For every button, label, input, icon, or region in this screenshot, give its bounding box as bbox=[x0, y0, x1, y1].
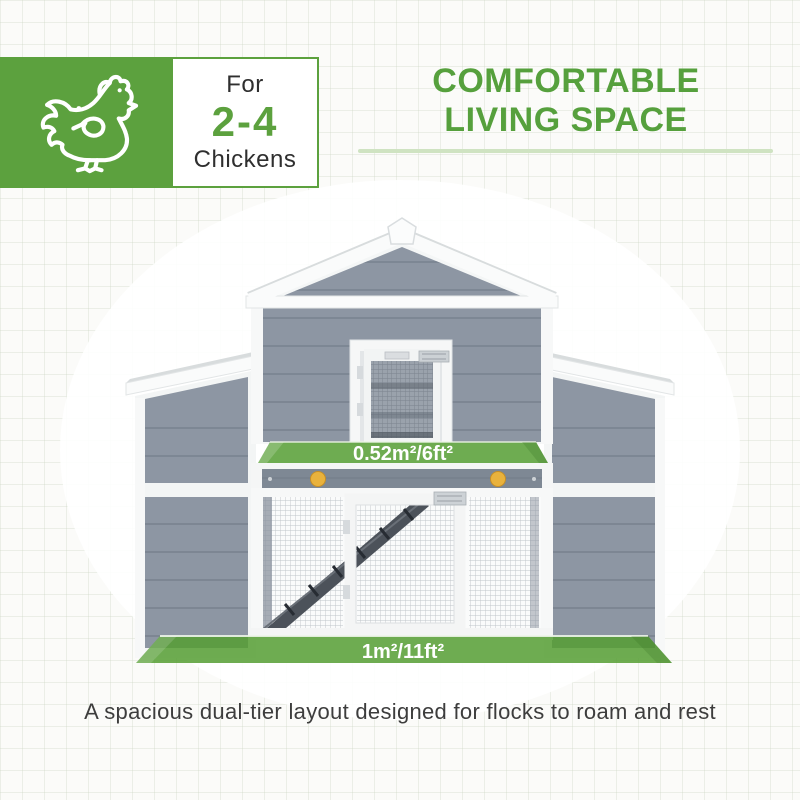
upper-door-latch bbox=[419, 351, 449, 362]
run-mesh-right bbox=[469, 497, 539, 631]
upper-floor-area: 0.52m²/6ft² bbox=[258, 442, 548, 465]
caption: A spacious dual-tier layout designed for… bbox=[0, 699, 800, 725]
knob-left bbox=[311, 472, 326, 487]
run-area bbox=[251, 488, 553, 640]
door-hinge bbox=[343, 520, 350, 534]
lower-floor-area: 1m²/11ft² bbox=[136, 636, 672, 663]
door-hinge bbox=[357, 366, 363, 379]
right-wing bbox=[542, 351, 674, 658]
infographic-page: For 2-4 Chickens COMFORTABLE LIVING SPAC… bbox=[0, 0, 800, 800]
door-hinge bbox=[343, 585, 350, 599]
door-hinge bbox=[357, 403, 363, 416]
lower-area-label: 1m²/11ft² bbox=[362, 641, 445, 663]
left-wing bbox=[126, 351, 258, 658]
knob-right bbox=[491, 472, 506, 487]
upper-area-label: 0.52m²/6ft² bbox=[353, 443, 453, 465]
coop-illustration: 0.52m²/6ft² 1m²/11ft² bbox=[0, 0, 800, 800]
coop-door-upper bbox=[350, 340, 452, 444]
run-door-latch bbox=[434, 492, 466, 505]
door-plaque bbox=[385, 352, 409, 359]
upper-door-mesh bbox=[371, 361, 433, 438]
